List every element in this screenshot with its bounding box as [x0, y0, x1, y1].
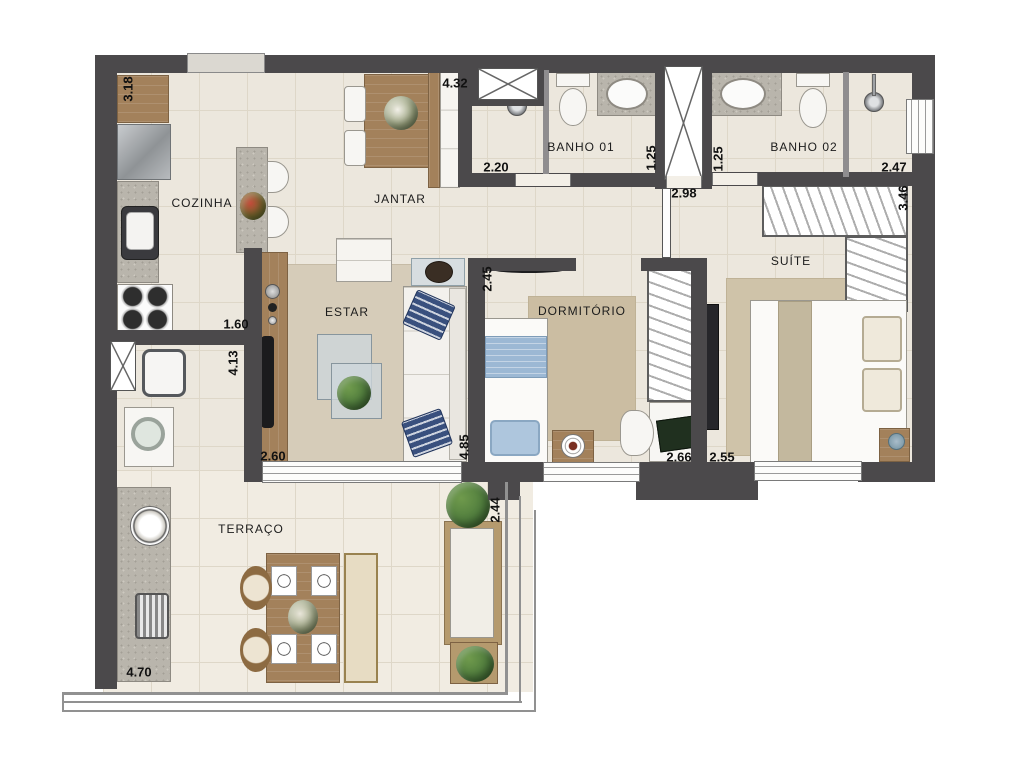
toilet-tank — [796, 73, 830, 87]
dim-suite-len: 3.46 — [896, 185, 911, 210]
wall-control-icon — [265, 284, 280, 299]
room-label-jantar: JANTAR — [374, 192, 426, 206]
bedroom-window — [543, 462, 640, 482]
wall — [691, 258, 707, 482]
terrace-plant — [446, 482, 490, 528]
wicker-chair — [240, 566, 272, 610]
terrace-railing — [62, 692, 64, 712]
dim-banho1-len: 1.25 — [644, 145, 659, 170]
dining-chair — [344, 86, 366, 122]
room-label-banho1: BANHO 01 — [547, 140, 614, 154]
outdoor-sofa-cushions — [450, 528, 494, 638]
wall — [858, 462, 935, 482]
dim-estar-w: 2.60 — [260, 449, 285, 464]
dim-cozinha-len: 3.18 — [121, 76, 136, 101]
bedroom-wardrobe — [647, 266, 697, 402]
toilet-bowl — [799, 88, 827, 128]
toilet-tank — [556, 73, 590, 87]
terrace-railing — [505, 482, 508, 695]
laundry-tub — [142, 349, 186, 397]
bedroom-blanket — [485, 336, 547, 378]
dim-estar-len: 4.85 — [457, 434, 472, 459]
bedroom-pillow — [490, 420, 540, 456]
floor-plan: COZINHA JANTAR BANHO 01 BANHO 02 SUÍTE E… — [0, 0, 1024, 768]
dim-dorm-len: 2.45 — [480, 266, 495, 291]
terrace-centerpiece — [288, 600, 318, 634]
dim-banho1-w: 2.20 — [483, 160, 508, 175]
terrace-plant — [456, 646, 494, 682]
dim-terraco-len: 2.44 — [488, 497, 503, 522]
room-label-suite: SUÍTE — [771, 254, 811, 268]
vent-shaft — [478, 68, 538, 100]
place-setting — [311, 566, 337, 596]
side-table-bowl — [561, 434, 585, 458]
room-label-dormitorio: DORMITÓRIO — [538, 304, 626, 318]
stove — [117, 284, 173, 332]
suite-bed-runner — [778, 301, 812, 463]
dim-banho2-len: 1.25 — [711, 146, 726, 171]
suite-window — [754, 461, 862, 481]
dim-hall-w: 2.98 — [671, 186, 696, 201]
bath2-basin — [720, 78, 766, 110]
toilet-bowl — [559, 88, 587, 126]
service-window — [110, 341, 136, 391]
washer-door — [131, 417, 165, 451]
wicker-chair — [240, 628, 272, 672]
bath1-door — [515, 174, 571, 186]
place-setting — [271, 634, 297, 664]
terrace-bench — [344, 553, 378, 683]
terrace-railing — [62, 692, 508, 695]
desk-chair — [620, 410, 654, 456]
bath2-window — [906, 99, 934, 154]
dim-jantar-w: 4.32 — [442, 76, 467, 91]
room-label-estar: ESTAR — [325, 305, 369, 319]
room-label-terraco: TERRAÇO — [218, 522, 284, 536]
room-label-banho2: BANHO 02 — [770, 140, 837, 154]
place-setting — [271, 566, 297, 596]
dining-tall-cabinet — [428, 70, 440, 188]
wall-control-icon — [268, 303, 277, 312]
terrace-railing — [62, 701, 522, 703]
dim-service-len: 4.13 — [226, 350, 241, 375]
shower-partition — [843, 72, 849, 177]
suite-door-leaf — [662, 188, 671, 258]
room-label-cozinha: COZINHA — [172, 196, 233, 210]
coffee-table-plant — [337, 376, 371, 410]
suite-pillow — [862, 368, 902, 412]
bath1-basin — [606, 78, 648, 110]
suite-pillow — [862, 316, 902, 362]
dim-cozinha-w: 1.60 — [223, 317, 248, 332]
terrace-sink — [130, 506, 170, 546]
elevator-shaft — [664, 66, 703, 180]
terrace-grill — [135, 593, 169, 639]
terrace-railing — [534, 510, 536, 712]
shower-arm — [872, 74, 876, 96]
terrace-railing — [519, 496, 521, 703]
bath2-door — [712, 173, 758, 185]
suite-lamp — [888, 433, 905, 450]
dim-banho2-w: 2.47 — [881, 160, 906, 175]
living-tv — [261, 336, 274, 428]
kitchen-window — [187, 53, 265, 73]
wall — [244, 248, 262, 482]
island-flowers — [240, 192, 266, 220]
dim-dorm-w: 2.66 — [666, 450, 691, 465]
refrigerator — [117, 124, 171, 180]
suite-closet — [762, 185, 908, 237]
pouf — [336, 238, 392, 282]
tray — [425, 261, 453, 283]
kitchen-sink-basin — [126, 212, 154, 250]
terrace-railing — [62, 710, 536, 712]
dim-terraco-w: 4.70 — [126, 665, 151, 680]
wall-control-icon — [268, 316, 277, 325]
dining-chair — [344, 130, 366, 166]
place-setting — [311, 634, 337, 664]
living-sliding-door — [262, 461, 462, 483]
dining-centerpiece — [384, 96, 418, 130]
dim-suite-w: 2.55 — [709, 450, 734, 465]
